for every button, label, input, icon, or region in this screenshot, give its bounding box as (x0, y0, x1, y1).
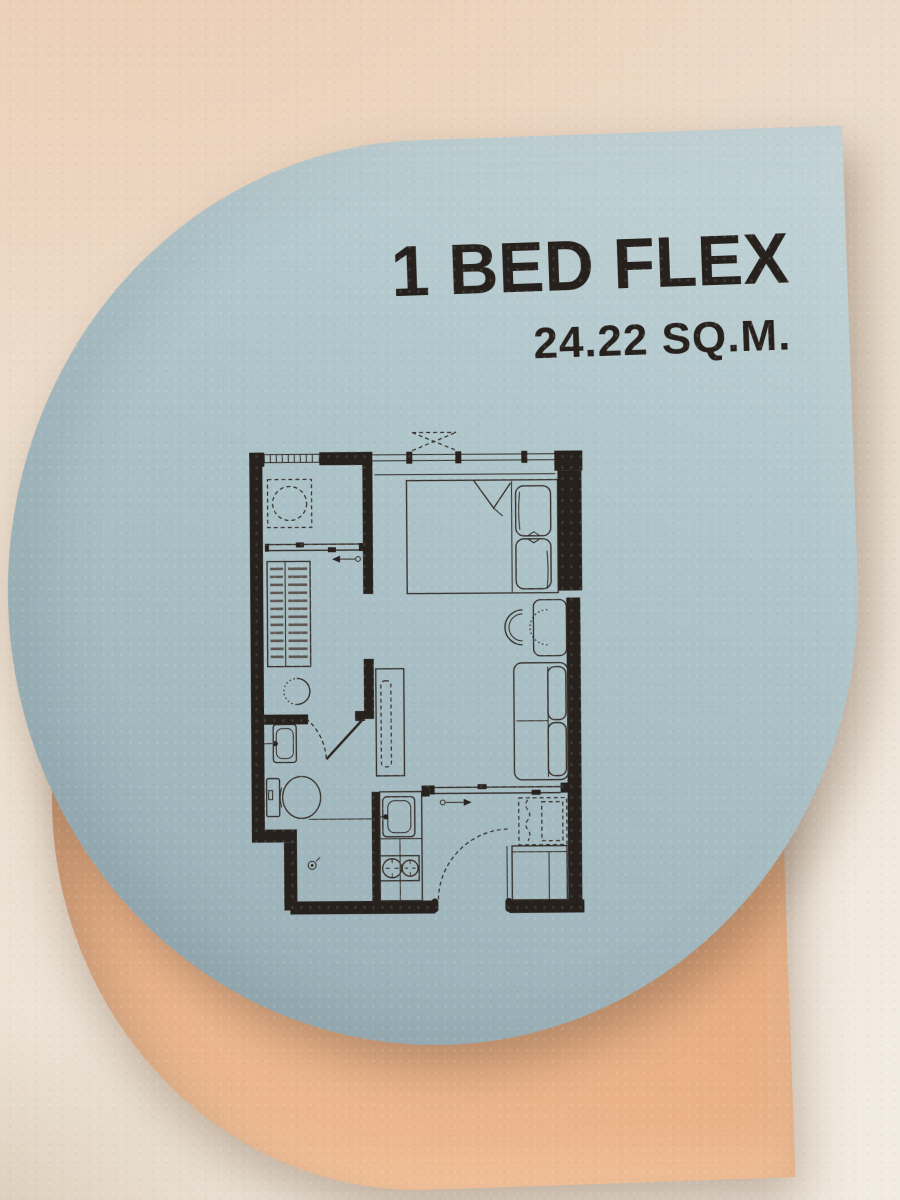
dressing-chair (505, 610, 523, 645)
unit-type-title: 1 BED FLEX (390, 223, 790, 308)
ceiling-line (374, 474, 555, 475)
window-swing-mark (412, 432, 456, 450)
entry-cabinet (507, 846, 567, 900)
slide-arrow-left (332, 556, 360, 563)
pillows (515, 486, 551, 589)
toilet (267, 776, 321, 818)
sofa (514, 663, 569, 780)
bathroom-sink (264, 724, 296, 762)
kitchen-counter (380, 792, 423, 901)
louver-window (264, 454, 319, 462)
bedroom-window (372, 432, 555, 475)
floor-plan (239, 425, 594, 919)
kitchen-sink (380, 797, 415, 837)
slide-arrow-right (440, 799, 471, 806)
round-mirror (284, 678, 310, 704)
bathroom-door (306, 718, 364, 759)
title-block: 1 BED FLEX 24.22 SQ.M. (377, 223, 792, 374)
sliding-door-balcony (265, 542, 363, 563)
sliding-partition (430, 784, 561, 806)
washing-machine (267, 479, 311, 527)
shower (308, 819, 372, 869)
unit-area: 24.22 SQ.M. (380, 310, 792, 374)
refrigerator (519, 798, 567, 845)
photo-of-unit-sign: { "sign": { "title": "1 BED FLEX", "area… (0, 0, 900, 1200)
bed (406, 480, 558, 594)
duvet-fold (473, 480, 510, 508)
desk (376, 669, 405, 776)
hangers (270, 567, 308, 658)
side-table (530, 600, 567, 656)
wardrobe (267, 561, 311, 666)
entrance-door-swing (438, 829, 508, 899)
